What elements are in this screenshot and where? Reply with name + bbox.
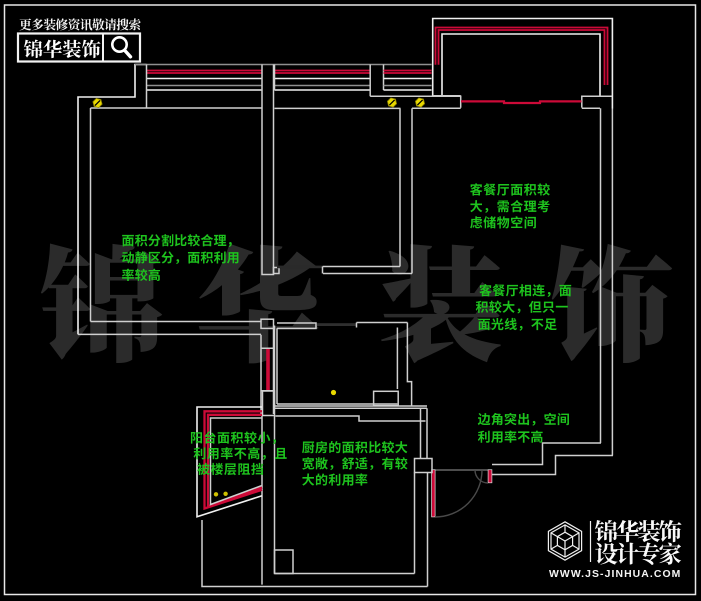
svg-text:WWW.JS-JINHUA.COM: WWW.JS-JINHUA.COM xyxy=(549,569,681,580)
